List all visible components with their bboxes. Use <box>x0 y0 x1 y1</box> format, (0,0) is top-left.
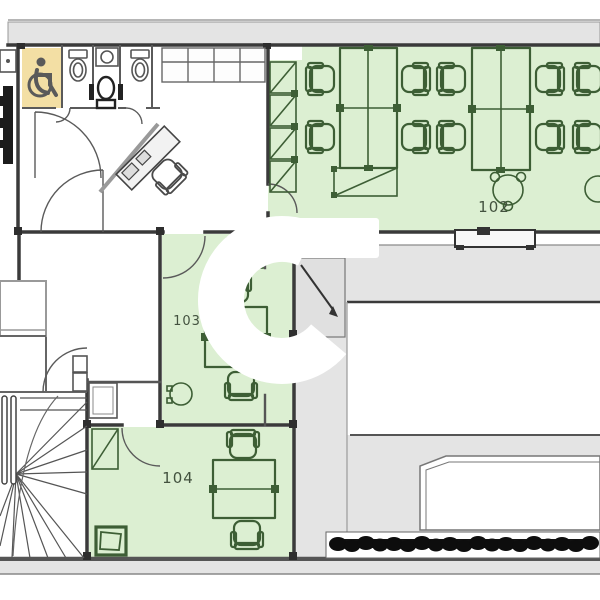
room-103-label: 103 <box>173 314 201 329</box>
room-102-label: 102 <box>478 198 510 216</box>
floor-plan-canvas: 102 103 104 <box>0 0 600 600</box>
upper-walkway <box>347 245 600 302</box>
hedge-icon <box>326 532 600 558</box>
floor-plan-viewport: 102 103 104 <box>0 0 600 600</box>
terrace-inset <box>420 456 600 530</box>
balcony <box>0 281 46 336</box>
bench <box>455 227 535 250</box>
stair-railing <box>11 396 16 484</box>
reception-area <box>100 124 201 211</box>
accessible-toilet-icon <box>89 77 123 108</box>
toilet-icon <box>69 50 87 81</box>
locker-row <box>162 48 265 82</box>
room-104-label: 104 <box>162 469 194 487</box>
ramp-arrow-block <box>294 258 345 337</box>
stair-railing <box>2 396 7 484</box>
staircase-icon <box>0 396 87 558</box>
room-102-floor <box>268 46 600 232</box>
bottom-exterior-band <box>0 560 600 574</box>
toilet-icon <box>131 50 149 81</box>
utility-shaft <box>0 86 13 164</box>
top-exterior-wall-band <box>8 22 600 44</box>
accessible-wc-floor <box>22 48 62 108</box>
